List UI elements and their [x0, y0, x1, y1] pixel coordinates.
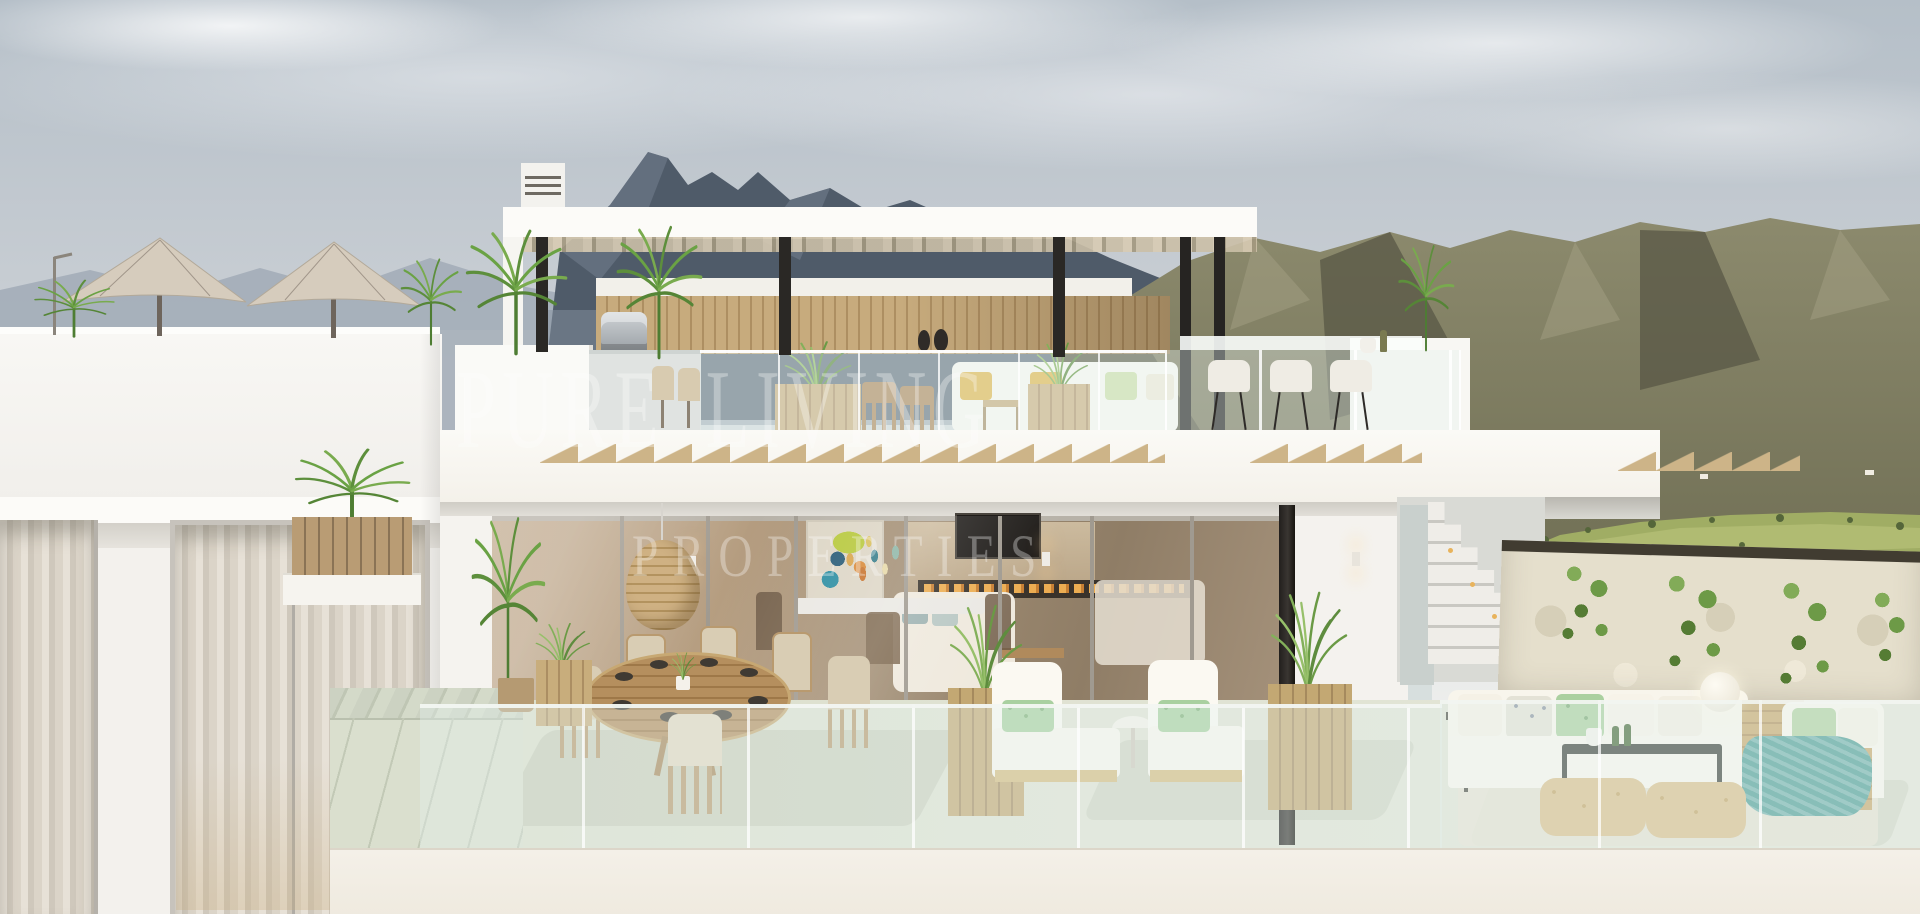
dining-plate: [700, 658, 718, 667]
champagne-bottle: [1380, 330, 1387, 352]
palm-plant: [1394, 242, 1458, 352]
rooftop-bar-chair: [652, 366, 674, 428]
parasol-canopy-2: [247, 242, 421, 306]
rooftop-white-box: [455, 345, 593, 433]
rooftop-bar-chair: [678, 368, 700, 428]
stair-step-light: [1448, 548, 1453, 553]
planter-grasses: [1252, 568, 1364, 693]
palm-plant: [610, 222, 708, 360]
front-parapet: [330, 848, 1920, 914]
wood-wedge-row: [1250, 444, 1422, 463]
ivy-cascade: [1762, 572, 1854, 690]
palm-plant: [458, 226, 574, 356]
wood-wedge-row: [1618, 452, 1800, 471]
bar-stool: [1270, 360, 1312, 392]
pendant-chain: [661, 503, 663, 545]
terrace-glass-balustrade: [420, 704, 1442, 854]
stair-step-light: [1492, 614, 1497, 619]
dining-plate: [615, 672, 633, 681]
bar-stool: [1330, 360, 1372, 392]
ivy-cascade: [1862, 580, 1920, 680]
palm-plant: [396, 256, 466, 346]
window-curtained-1: [0, 520, 98, 914]
palm-plant: [28, 278, 120, 338]
villa-render: PURE LIVING PROPERTIES: [0, 0, 1920, 914]
roof-slab-band: [440, 430, 1660, 505]
terrace-ledge: [283, 573, 421, 605]
rattan-pendant-lamp: [626, 540, 700, 630]
centerpiece-plant: [664, 646, 702, 680]
stair-step-light: [1470, 582, 1475, 587]
decor-vase: [934, 329, 948, 351]
wood-wedge-row: [540, 444, 1165, 463]
bar-stool: [1208, 360, 1250, 392]
champagne-bucket: [1360, 338, 1376, 353]
ivy-cascade: [1648, 564, 1744, 674]
right-glass-balustrade: [1440, 700, 1920, 854]
pergola-post: [1053, 237, 1065, 357]
ivy-cascade: [1546, 555, 1633, 650]
wall-sconce: [1352, 552, 1360, 566]
wood-planter-box: [292, 517, 412, 575]
chimney-louvres: [525, 171, 561, 199]
rooftop-glass-balustrade: [700, 350, 1165, 437]
pergola-post: [779, 237, 791, 355]
dining-plate: [740, 668, 758, 677]
decor-vase: [918, 330, 930, 351]
